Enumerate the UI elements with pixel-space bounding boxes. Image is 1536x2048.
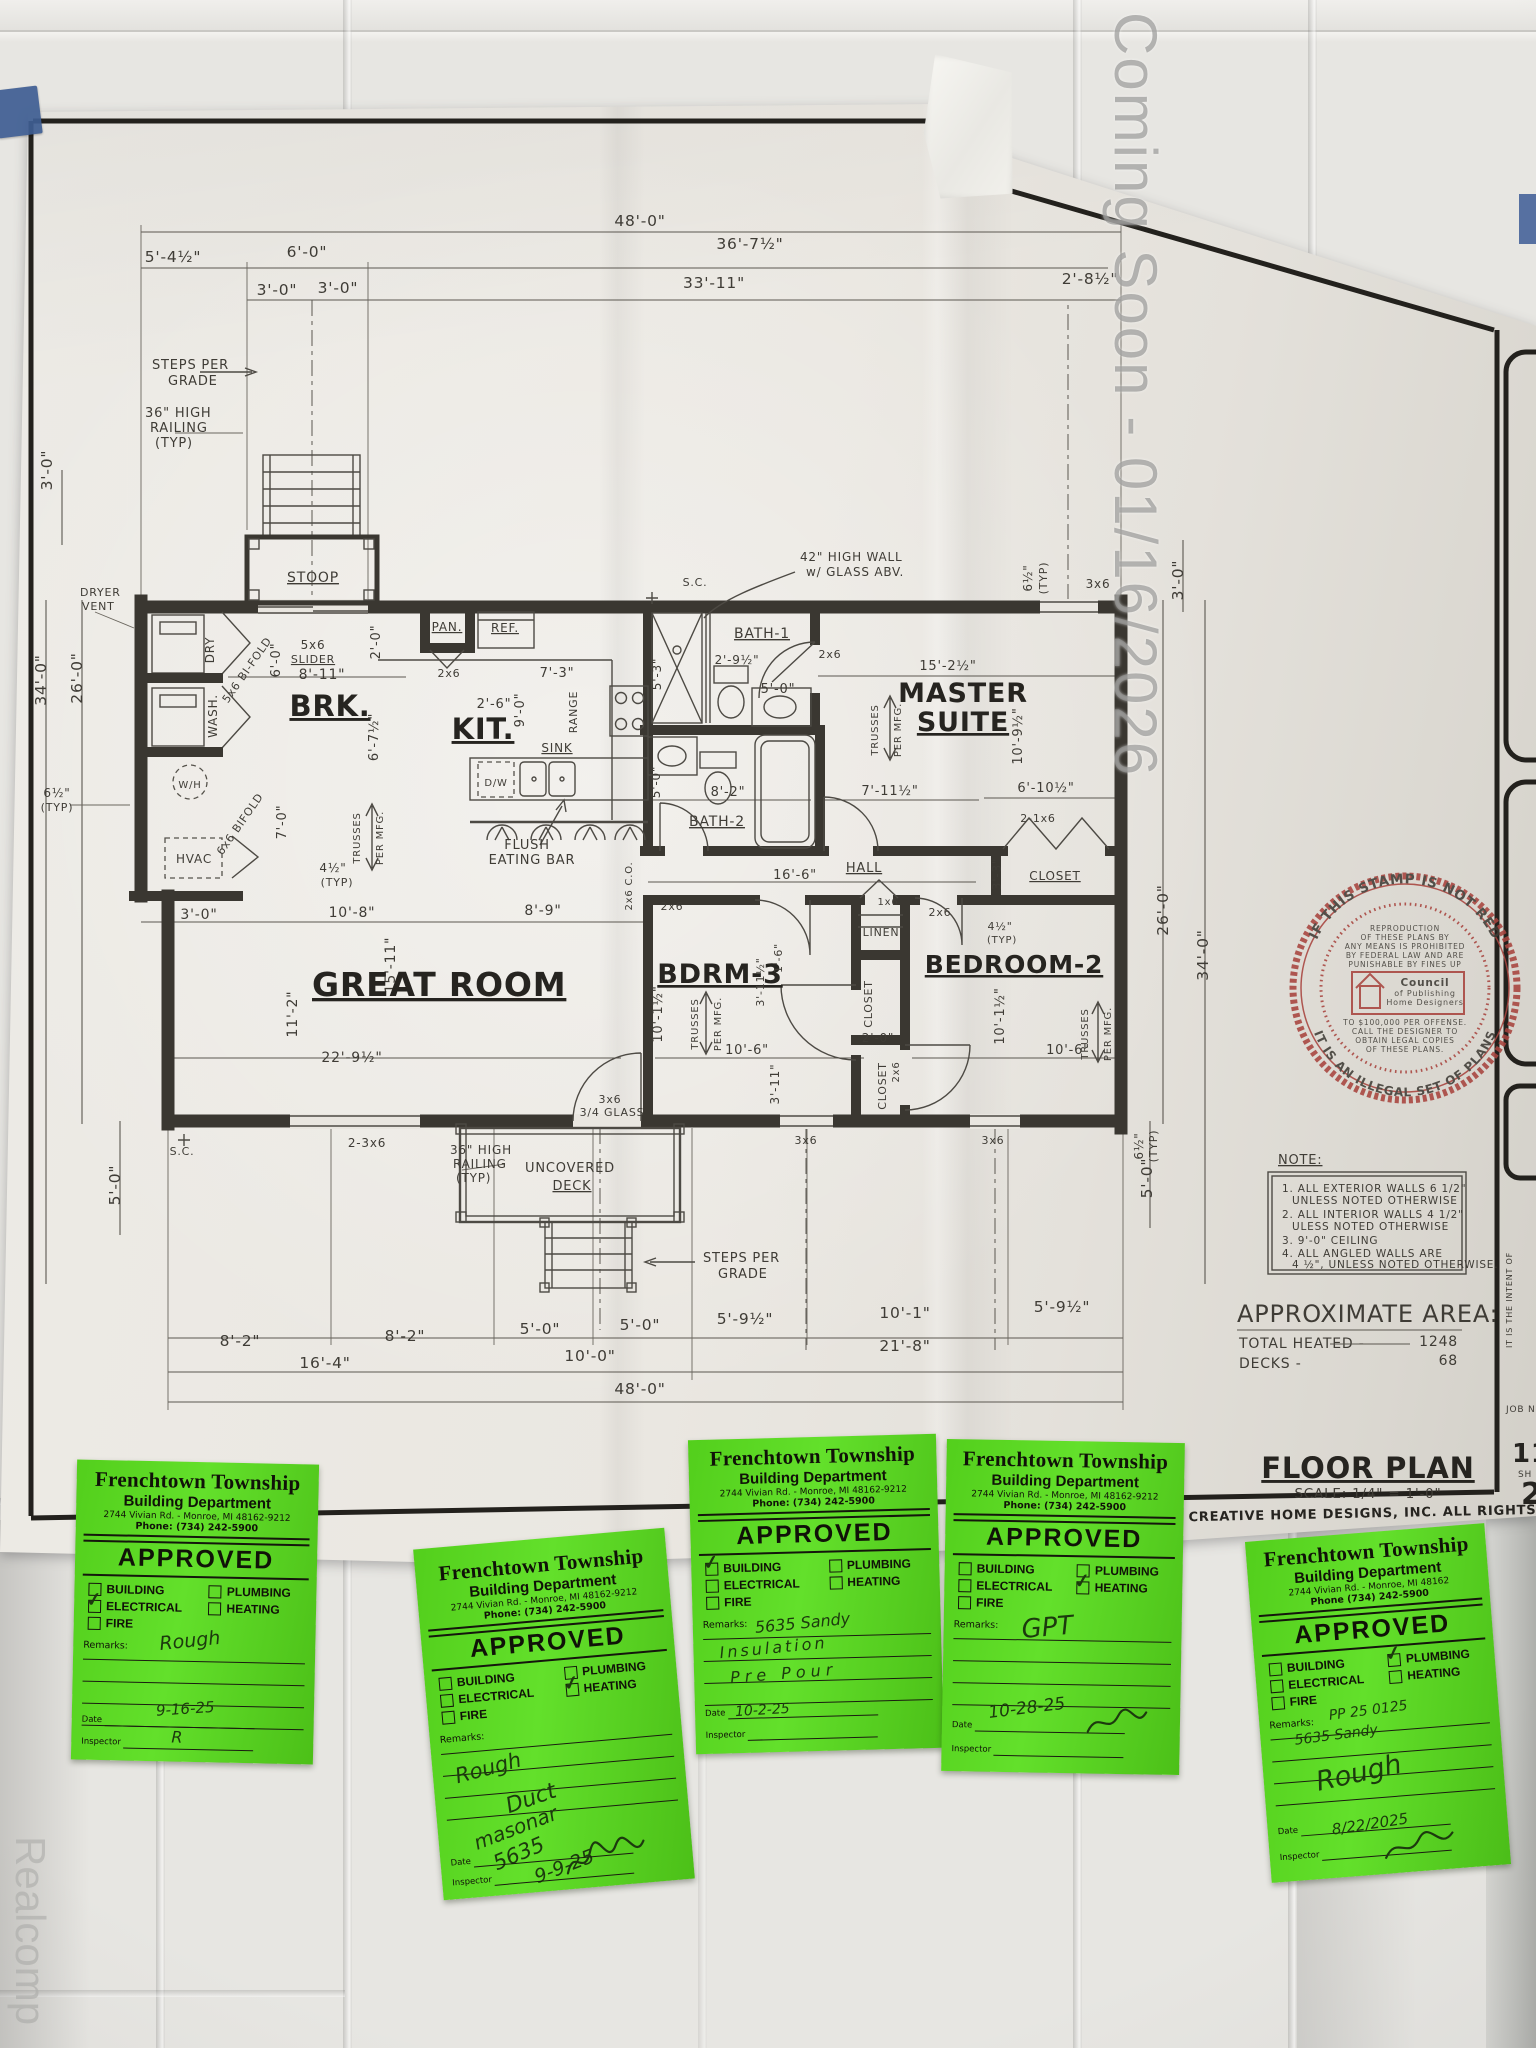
- checkbox-label: FIRE: [106, 1616, 134, 1631]
- checkbox-label: BUILDING: [977, 1561, 1035, 1576]
- approved-label: APPROVED: [83, 1540, 310, 1581]
- handwritten-remark: GPT: [1020, 1611, 1074, 1645]
- inspector-row: Inspector: [706, 1725, 934, 1742]
- date-label: Date: [1277, 1826, 1298, 1838]
- checkbox-label: FIRE: [976, 1595, 1004, 1609]
- checkbox-electrical: ELECTRICAL: [706, 1576, 830, 1593]
- checkbox-fire: FIRE: [706, 1593, 830, 1610]
- checkbox-plumbing: PLUMBING: [209, 1584, 317, 1600]
- remarks-label: Remarks:: [703, 1619, 748, 1631]
- inspection-checkboxes: ✓BUILDING PLUMBING ELECTRICAL HEATING FI…: [691, 1553, 940, 1610]
- checkbox-fire: FIRE: [958, 1595, 1077, 1611]
- checkbox-building: BUILDING: [959, 1561, 1078, 1577]
- approval-sticker-1: Frenchtown Township Building Department …: [71, 1459, 319, 1764]
- handwritten-date: 10-2-25: [735, 1701, 791, 1720]
- checkbox-heating: HEATING: [829, 1573, 940, 1590]
- checkbox-plumbing: PLUMBING: [1077, 1563, 1183, 1579]
- checkbox-label: PLUMBING: [582, 1659, 647, 1679]
- approval-sticker-5: Frenchtown Township Building Department …: [1245, 1523, 1511, 1883]
- checkbox-electrical-checked: ✓ELECTRICAL: [88, 1599, 209, 1616]
- checkbox-label: HEATING: [583, 1677, 637, 1696]
- inspector-label: Inspector: [1279, 1850, 1319, 1863]
- coming-soon-watermark: Coming Soon - 01/16/2026: [1101, 12, 1170, 777]
- checkbox-label: PLUMBING: [227, 1585, 291, 1600]
- checkbox-label: FIRE: [1289, 1693, 1317, 1709]
- checkbox-electrical: ELECTRICAL: [958, 1578, 1077, 1594]
- check-mark: ✓: [1073, 1569, 1092, 1594]
- sticker-township: Frenchtown Township: [946, 1439, 1185, 1475]
- approval-sticker-3: Frenchtown Township Building Department …: [688, 1434, 944, 1754]
- checkbox-label: PLUMBING: [1405, 1647, 1470, 1666]
- checkbox-building: BUILDING: [88, 1582, 209, 1599]
- blue-tape: [0, 85, 43, 138]
- checkbox-label: HEATING: [1095, 1581, 1148, 1596]
- checkbox-label: BUILDING: [1286, 1657, 1345, 1676]
- checkbox-label: HEATING: [226, 1602, 279, 1617]
- photo-of-floorplan-on-door: 48'-0" 5'-4½" 6'-0" 36'-7½" 3'-0" 3'-0" …: [0, 0, 1536, 2048]
- inspector-label: Inspector: [951, 1744, 991, 1755]
- inspector-row: Inspector: [81, 1737, 303, 1753]
- checkbox-label: PLUMBING: [847, 1557, 911, 1573]
- date-label: Date: [952, 1720, 972, 1730]
- inspector-label: Inspector: [452, 1875, 492, 1888]
- checkbox-heating-checked: ✓HEATING: [1077, 1580, 1183, 1596]
- approved-label: APPROVED: [953, 1519, 1176, 1559]
- sticker-township: Frenchtown Township: [688, 1434, 937, 1472]
- checkbox-label: ELECTRICAL: [976, 1578, 1052, 1593]
- date-label: Date: [705, 1708, 726, 1719]
- blue-tape: [1519, 194, 1536, 244]
- checkbox-label: BUILDING: [106, 1582, 164, 1597]
- date-label: Date: [450, 1857, 471, 1869]
- handwritten-inspector: R: [171, 1728, 183, 1747]
- checkbox-label: ELECTRICAL: [106, 1599, 182, 1615]
- checkbox-plumbing: PLUMBING: [829, 1556, 940, 1573]
- approved-label: APPROVED: [698, 1514, 931, 1556]
- check-mark: ✓: [85, 1588, 104, 1613]
- approval-sticker-4: Frenchtown Township Building Department …: [941, 1439, 1185, 1775]
- realcomp-watermark: Realcomp: [6, 1836, 54, 2025]
- remarks-label: Remarks:: [954, 1619, 999, 1631]
- sticker-township: Frenchtown Township: [76, 1459, 319, 1496]
- checkbox-label: PLUMBING: [1095, 1564, 1159, 1579]
- inspector-signature: [559, 1830, 653, 1884]
- inspector-signature: [1378, 1826, 1461, 1868]
- checkbox-label: FIRE: [724, 1595, 752, 1610]
- inspector-signature: [1082, 1703, 1153, 1740]
- approval-sticker-2: Frenchtown Township Building Department …: [413, 1528, 695, 1901]
- inspector-label: Inspector: [81, 1737, 121, 1748]
- checkbox-label: FIRE: [459, 1707, 487, 1723]
- checkbox-label: BUILDING: [456, 1670, 515, 1689]
- checkbox-label: BUILDING: [723, 1560, 781, 1576]
- remarks-label: Remarks:: [83, 1640, 128, 1652]
- inspector-row: Inspector: [951, 1744, 1169, 1759]
- checkbox-label: HEATING: [847, 1574, 900, 1589]
- date-label: Date: [82, 1715, 103, 1725]
- inspector-label: Inspector: [706, 1730, 746, 1741]
- checkbox-label: ELECTRICAL: [724, 1576, 800, 1592]
- checkbox-heating: HEATING: [208, 1601, 316, 1617]
- inspection-checkboxes: BUILDING PLUMBING ELECTRICAL ✓HEATING FI…: [944, 1558, 1183, 1613]
- checkbox-label: HEATING: [1407, 1664, 1461, 1682]
- inspection-checkboxes: BUILDING PLUMBING ✓ELECTRICAL HEATING FI…: [74, 1578, 317, 1634]
- checkbox-building-checked: ✓BUILDING: [705, 1559, 829, 1576]
